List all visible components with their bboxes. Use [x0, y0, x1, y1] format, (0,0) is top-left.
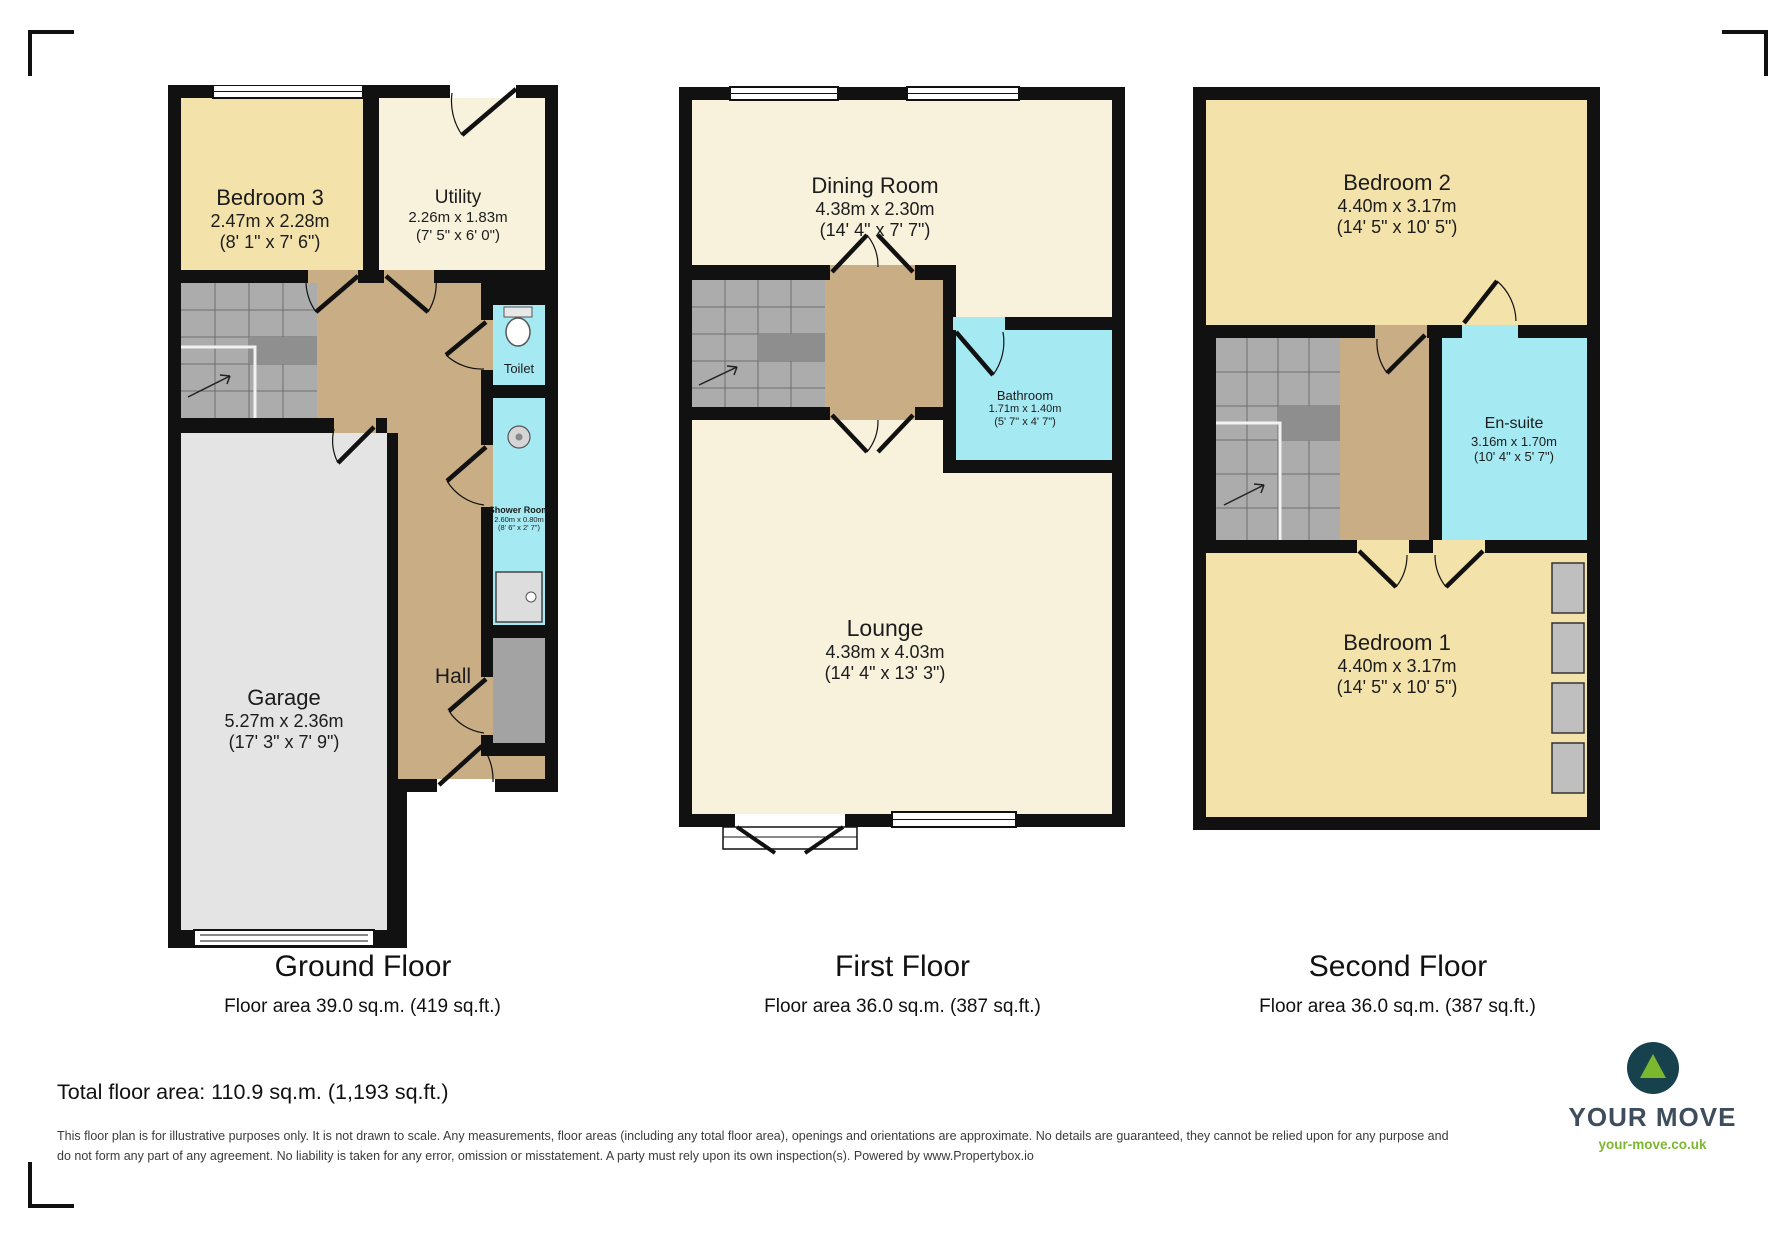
room-name: Garage	[174, 685, 394, 711]
room-dims-ft: (14' 5" x 10' 5")	[1282, 677, 1512, 698]
toilet-label: Toilet	[479, 361, 559, 376]
shower-head-icon	[508, 426, 530, 448]
room-dims-m: 3.16m x 1.70m	[1429, 434, 1599, 449]
shower-tray-icon	[496, 572, 542, 622]
room-dims-ft: (14' 4" x 13' 3")	[770, 663, 1000, 684]
second-floor-title: Second Floor	[1193, 950, 1603, 984]
room-dims-m: 2.47m x 2.28m	[175, 211, 365, 232]
toilet-icon	[504, 307, 532, 346]
room-name: Utility	[373, 187, 543, 209]
corner-bracket-top-right	[1722, 30, 1768, 76]
room-name: Bathroom	[950, 388, 1100, 403]
garage-label: Garage 5.27m x 2.36m (17' 3" x 7' 9")	[174, 685, 394, 753]
stairs-half-landing	[758, 334, 825, 361]
bathroom-label: Bathroom 1.71m x 1.40m (5' 7" x 4' 7")	[950, 388, 1100, 429]
first-floor-area: Floor area 36.0 sq.m. (387 sq.ft.)	[680, 996, 1125, 1018]
room-dims-m: 1.71m x 1.40m	[950, 403, 1100, 416]
ground-floor-plan: Bedroom 3 2.47m x 2.28m (8' 1" x 7' 6") …	[150, 85, 560, 950]
stairs-half-landing	[249, 337, 317, 364]
room-name: Bedroom 3	[175, 185, 365, 211]
brand-logo: YOUR MOVE your-move.co.uk	[1545, 1040, 1760, 1152]
brand-name: YOUR MOVE	[1545, 1102, 1760, 1133]
bedroom-3-window	[213, 85, 363, 98]
room-dims-ft: (10' 4" x 5' 7")	[1429, 449, 1599, 464]
lounge-label: Lounge 4.38m x 4.03m (14' 4" x 13' 3")	[770, 615, 1000, 685]
disclaimer-text: This floor plan is for illustrative purp…	[57, 1126, 1452, 1166]
room-dims-ft: (17' 3" x 7' 9")	[174, 732, 394, 753]
ground-floor-title: Ground Floor	[168, 950, 558, 984]
room-name: Dining Room	[760, 173, 990, 199]
ensuite-label: En-suite 3.16m x 1.70m (10' 4" x 5' 7")	[1429, 415, 1599, 465]
first-floor-title: First Floor	[680, 950, 1125, 984]
room-dims-ft: (14' 5" x 10' 5")	[1282, 217, 1512, 238]
first-landing	[825, 280, 943, 407]
bedroom-2-label: Bedroom 2 4.40m x 3.17m (14' 5" x 10' 5"…	[1282, 170, 1512, 238]
room-dims-ft: (8' 1" x 7' 6")	[175, 232, 365, 253]
floorplan-page: { "floors": [ { "title": "Ground Floor",…	[0, 0, 1771, 1239]
shower-room-label: Shower Room 2.60m x 0.80m (8' 6" x 2' 7"…	[474, 505, 564, 533]
room-dims-m: 4.40m x 3.17m	[1282, 656, 1512, 677]
brand-url: your-move.co.uk	[1545, 1137, 1760, 1152]
lounge-window	[892, 812, 1016, 827]
room-dims-ft: (14' 4" x 7' 7")	[760, 220, 990, 241]
corner-bracket-bottom-left	[28, 1162, 74, 1208]
garage-door	[194, 930, 374, 946]
room-dims-m: 4.38m x 2.30m	[760, 199, 990, 220]
room-dims-ft: (7' 5" x 6' 0")	[373, 227, 543, 245]
stairs-half-landing	[1278, 406, 1340, 440]
room-dims-m: 4.38m x 4.03m	[770, 642, 1000, 663]
patio-doors	[723, 827, 857, 853]
utility-label: Utility 2.26m x 1.83m (7' 5" x 6' 0")	[373, 187, 543, 245]
room-dims-ft: (5' 7" x 4' 7")	[950, 416, 1100, 429]
ground-floor-area: Floor area 39.0 sq.m. (419 sq.ft.)	[150, 996, 575, 1018]
room-name: Bedroom 1	[1282, 630, 1512, 656]
bedroom-1-label: Bedroom 1 4.40m x 3.17m (14' 5" x 10' 5"…	[1282, 630, 1512, 698]
room-name: Hall	[408, 665, 498, 690]
dining-room-label: Dining Room 4.38m x 2.30m (14' 4" x 7' 7…	[760, 173, 990, 241]
first-floor-plan: Dining Room 4.38m x 2.30m (14' 4" x 7' 7…	[675, 85, 1125, 855]
second-floor-area: Floor area 36.0 sq.m. (387 sq.ft.)	[1185, 996, 1610, 1018]
dining-window-right	[907, 87, 1019, 100]
hall-label: Hall	[408, 665, 498, 690]
room-dims-m: 2.26m x 1.83m	[373, 209, 543, 227]
room-name: En-suite	[1429, 415, 1599, 434]
room-dims-m: 4.40m x 3.17m	[1282, 196, 1512, 217]
room-name: Bedroom 2	[1282, 170, 1512, 196]
total-floor-area: Total floor area: 110.9 sq.m. (1,193 sq.…	[57, 1080, 449, 1105]
room-name: Toilet	[479, 361, 559, 376]
storage-cupboard	[493, 638, 545, 743]
corner-bracket-top-left	[28, 30, 74, 76]
second-floor-plan: Bedroom 2 4.40m x 3.17m (14' 5" x 10' 5"…	[1190, 85, 1610, 830]
room-name: Lounge	[770, 615, 1000, 642]
room-dims-m: 5.27m x 2.36m	[174, 711, 394, 732]
garage-room	[181, 433, 387, 930]
dining-window-left	[730, 87, 838, 100]
bedroom-3-label: Bedroom 3 2.47m x 2.28m (8' 1" x 7' 6")	[175, 185, 365, 253]
your-move-roundel-icon	[1625, 1040, 1681, 1096]
room-dims-ft: (8' 6" x 2' 7")	[474, 524, 564, 533]
